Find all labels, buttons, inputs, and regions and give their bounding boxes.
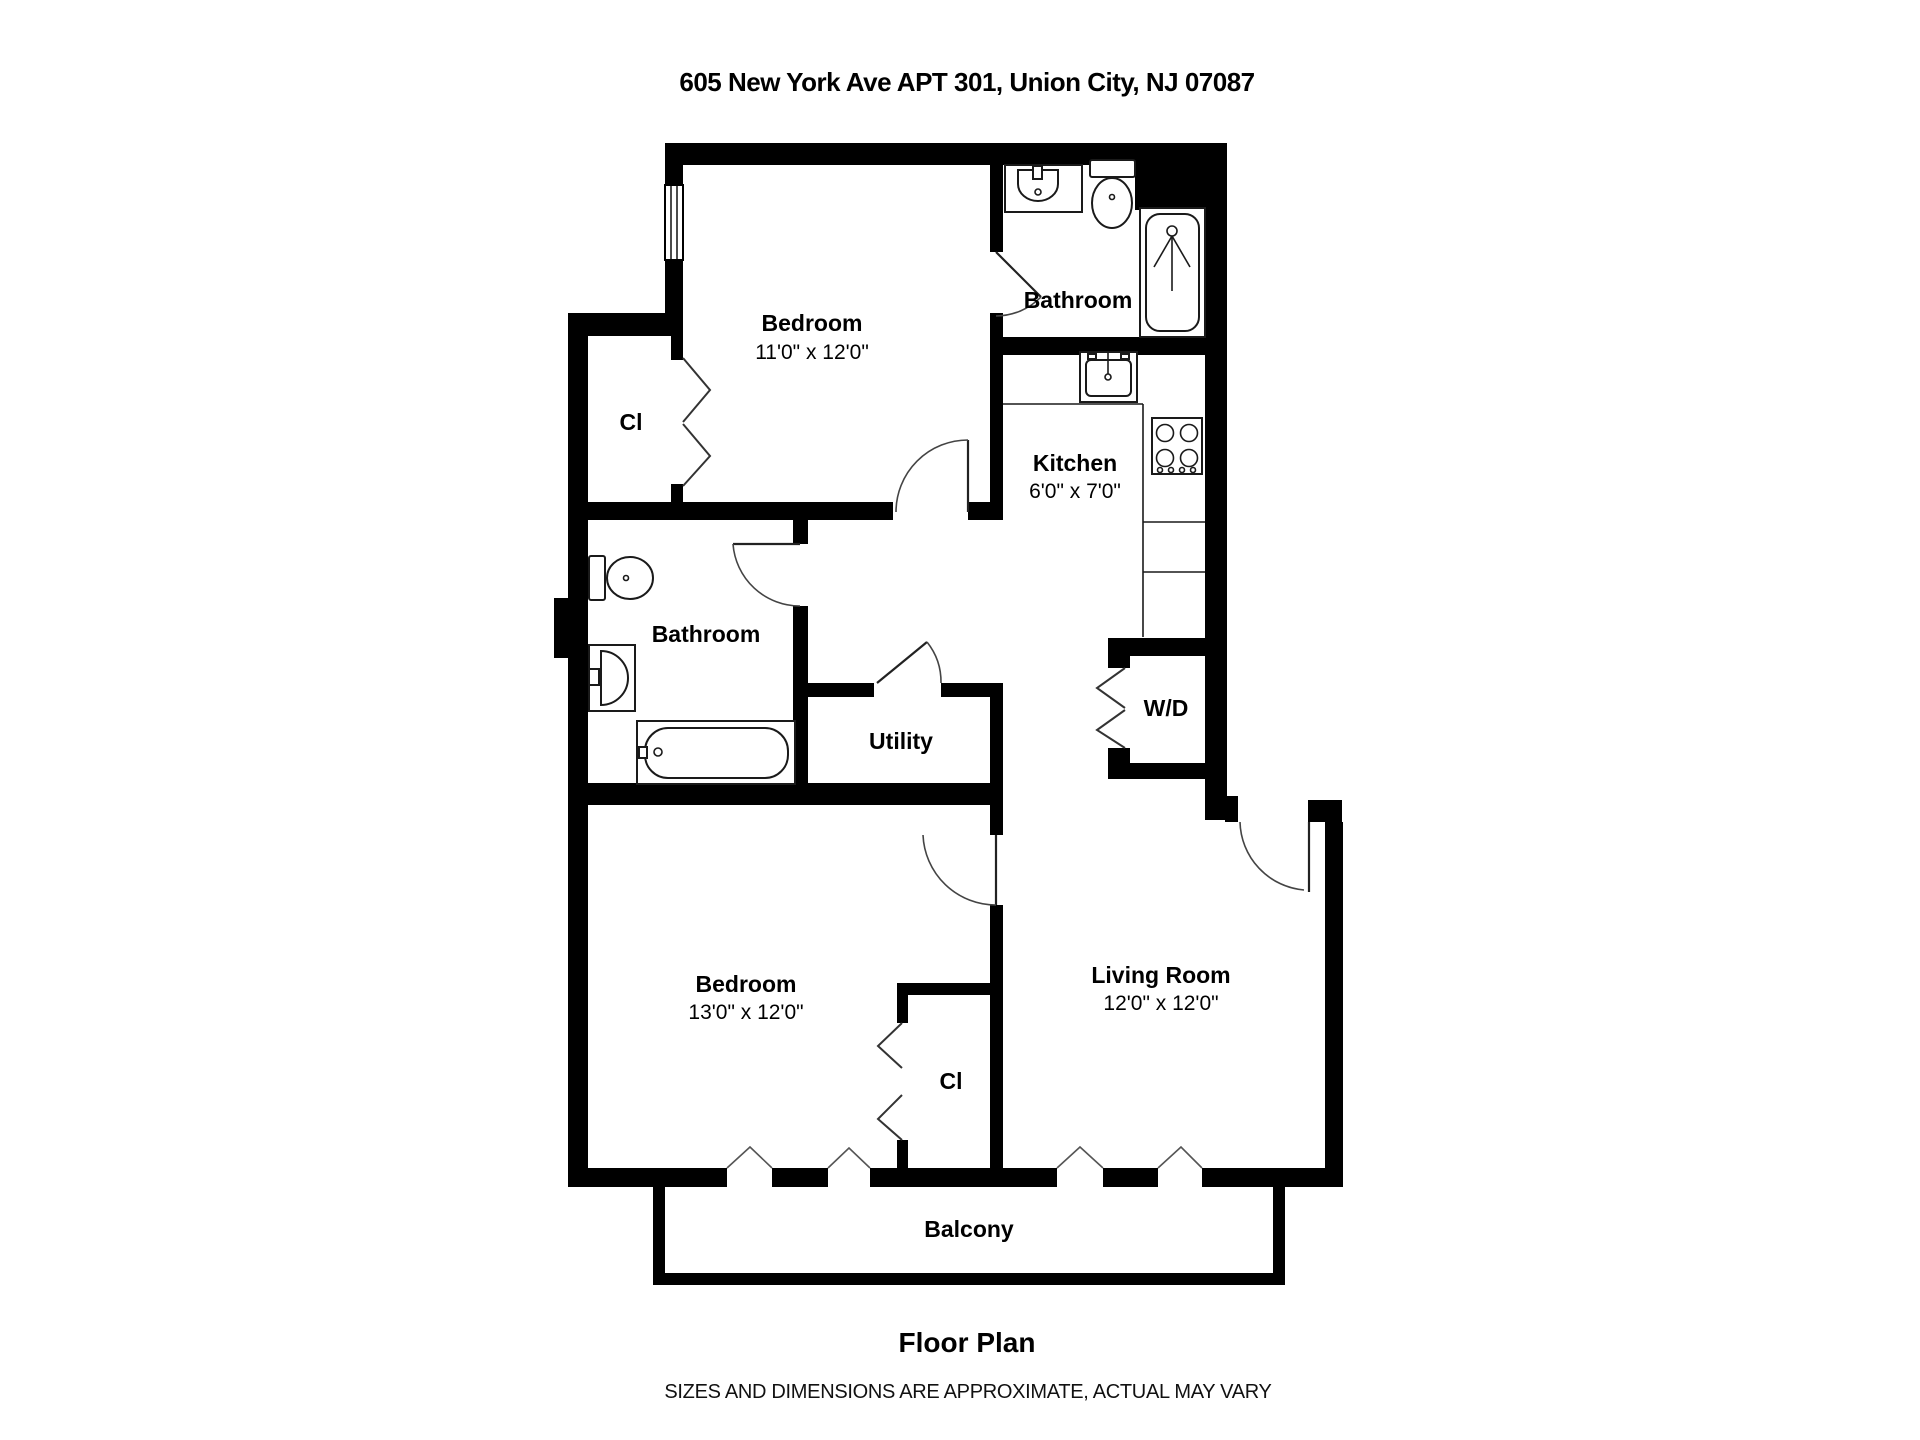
wall-divider-lower-b (990, 905, 1003, 985)
floor-plan-page: 605 New York Ave APT 301, Union City, NJ… (0, 0, 1920, 1440)
room-label-closet1: Cl (620, 409, 643, 435)
room-label-utility: Utility (869, 728, 933, 754)
wall-wd-stub-top (1108, 656, 1130, 668)
plan-title: 605 New York Ave APT 301, Union City, NJ… (679, 67, 1254, 97)
bathroom1-sink-icon (1005, 165, 1082, 212)
wall-left-spine (568, 336, 588, 1187)
plan-disclaimer: SIZES AND DIMENSIONS ARE APPROXIMATE, AC… (664, 1381, 1271, 1403)
bedroom1-door (896, 440, 968, 512)
room-label-living-room: Living Room (1091, 962, 1230, 988)
wall-balcony-left (653, 1187, 665, 1285)
wall-left-chunk (554, 598, 568, 658)
wall-divider-lower-a (990, 805, 1003, 835)
wall-left-jog (568, 313, 683, 336)
floor-plan-drawing: 605 New York Ave APT 301, Union City, NJ… (0, 0, 1920, 1440)
plan-caption: Floor Plan (899, 1327, 1036, 1358)
wall-closet2-stub-top (897, 995, 908, 1023)
room-label-bathroom2: Bathroom (652, 621, 761, 647)
wall-balcony-right (1273, 1187, 1285, 1285)
wall-hall-north-stub (968, 502, 1003, 520)
wall-top (665, 143, 1227, 165)
bathroom2-sink-icon (589, 645, 635, 711)
wall-closet1-stub-top (671, 336, 683, 360)
bedroom1-window (665, 185, 683, 260)
wall-entry-right-chunk (1308, 800, 1342, 822)
bedroom2-door (923, 835, 996, 905)
room-label-wd: W/D (1144, 695, 1189, 721)
shower-icon (1140, 208, 1205, 337)
room-dims-kitchen: 6'0" x 7'0" (1029, 480, 1121, 503)
room-label-kitchen: Kitchen (1033, 450, 1117, 476)
wall-bedroom1-left-lower (665, 260, 683, 313)
room-label-bedroom2: Bedroom (696, 971, 797, 997)
wall-closet2-top (897, 983, 1003, 995)
wall-wd-stub-bottom (1108, 748, 1130, 763)
utility-door (877, 642, 941, 683)
wall-divider-upper (990, 165, 1003, 252)
bathroom2-door (733, 544, 800, 606)
room-label-bedroom1: Bedroom (762, 310, 863, 336)
wall-bottom-seg1 (568, 1168, 727, 1187)
wall-bathroom2-right-top (793, 520, 808, 544)
wall-balcony-bottom (653, 1273, 1285, 1285)
wall-entry-step (1225, 796, 1238, 822)
closet1-bifold-door (683, 358, 710, 486)
room-label-closet2: Cl (940, 1068, 963, 1094)
wall-bottom-seg3 (870, 1168, 1057, 1187)
wall-bottom-seg4 (1103, 1168, 1158, 1187)
wall-utility-top-left (808, 683, 874, 697)
bathtub-icon (637, 721, 795, 784)
wall-right-spine (1205, 165, 1227, 820)
wall-bedroom1-left-upper (665, 165, 683, 187)
wall-hall-north (568, 502, 893, 520)
room-dims-living-room: 12'0" x 12'0" (1103, 992, 1218, 1015)
wd-bifold-door (1097, 668, 1125, 748)
wall-closet1-stub-bottom (671, 484, 683, 504)
balcony-opening-marks (727, 1147, 1202, 1168)
bathroom2-toilet-icon (589, 556, 653, 600)
room-label-bathroom1: Bathroom (1024, 287, 1133, 313)
wall-bottom-seg2 (772, 1168, 828, 1187)
closet2-bifold-door (878, 1023, 902, 1140)
kitchen-sink-icon (1080, 352, 1137, 402)
bathroom1-toilet-icon (1090, 160, 1135, 228)
room-dims-bedroom1: 11'0" x 12'0" (755, 341, 869, 364)
wall-bedroom2-top (568, 783, 1003, 805)
wall-closet2-right (990, 985, 1003, 1168)
entry-door (1240, 822, 1309, 892)
room-label-balcony: Balcony (924, 1216, 1014, 1242)
wall-bottom-seg5 (1202, 1168, 1343, 1187)
wall-closet2-stub-bottom (897, 1140, 908, 1168)
stove-icon (1152, 418, 1202, 474)
wall-wd-top (1108, 638, 1227, 656)
walls (554, 143, 1343, 1285)
room-dims-bedroom2: 13'0" x 12'0" (688, 1001, 803, 1024)
wall-wd-bottom (1108, 763, 1227, 779)
wall-living-right (1325, 822, 1343, 1187)
